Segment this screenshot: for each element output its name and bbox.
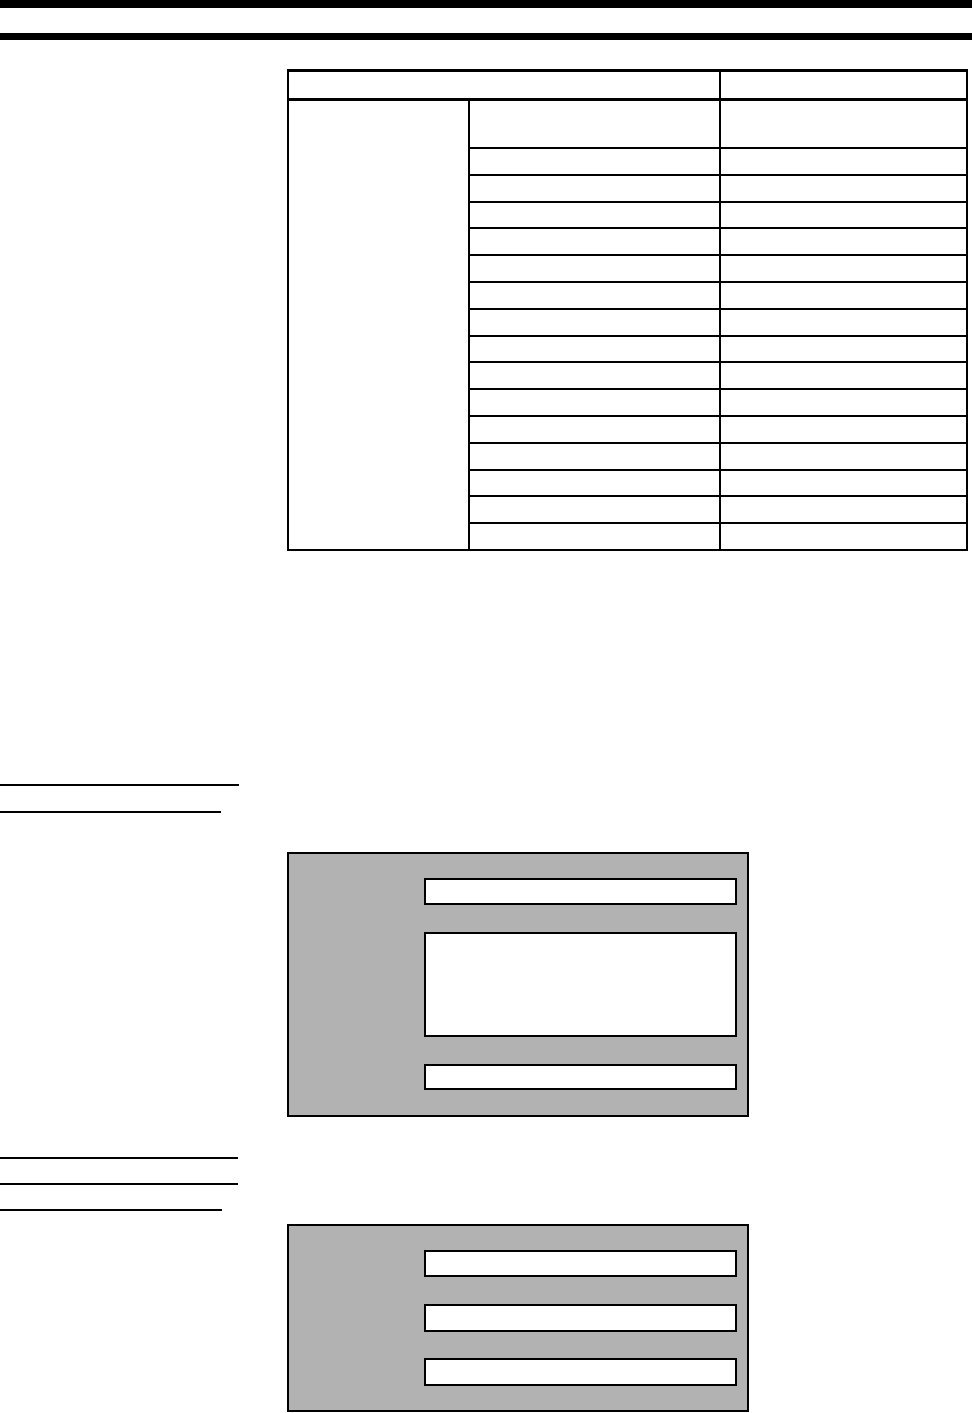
document-page [0,0,972,1413]
table-row [470,283,966,310]
row-label-cell [470,471,721,496]
spec-table-category-cell [289,101,470,549]
row-label-cell [470,149,721,174]
spec-table-header-row [289,72,966,101]
row-value-cell [721,471,966,496]
table-row [470,256,966,283]
spec-table-header-cell-left [289,72,721,98]
spec-table-header-cell-right [721,72,966,98]
row-label-cell [470,176,721,201]
table-row [470,390,966,417]
screen-field [424,932,737,1037]
screen-mockup-2 [287,1224,749,1412]
row-value-cell [721,363,966,388]
table-row [470,203,966,230]
row-label-cell [470,310,721,335]
row-value-cell [721,337,966,362]
row-label-cell [470,390,721,415]
row-value-cell [721,176,966,201]
row-label-cell [470,337,721,362]
screen-field [424,1064,737,1090]
table-row [470,444,966,471]
table-row [470,497,966,524]
header-rule [0,33,972,40]
row-label-cell [470,283,721,308]
row-value-cell [721,524,966,549]
margin-rule [0,811,221,813]
row-value-cell [721,149,966,174]
row-label-cell [470,497,721,522]
row-value-cell [721,497,966,522]
screen-field [424,1304,737,1332]
table-row [470,337,966,364]
table-row [470,524,966,549]
row-label-cell [470,444,721,469]
margin-rule [0,1183,238,1185]
table-row [470,229,966,256]
table-row [470,310,966,337]
table-row [470,176,966,203]
table-row [470,363,966,390]
page-top-bar [0,0,972,8]
margin-rule [0,1209,222,1211]
screen-field [424,1250,737,1277]
row-value-cell [721,283,966,308]
screen-mockup-1 [287,852,749,1117]
row-label-cell [470,229,721,254]
row-value-cell [721,390,966,415]
row-value-cell [721,229,966,254]
row-value-cell [721,101,966,147]
row-label-cell [470,417,721,442]
table-row [470,101,966,149]
spec-table-rows [470,101,966,549]
margin-rule [0,1157,238,1159]
row-value-cell [721,417,966,442]
margin-rule [0,784,239,786]
table-row [470,417,966,444]
screen-field [424,878,737,905]
spec-table-body [289,101,966,549]
row-label-cell [470,256,721,281]
row-label-cell [470,524,721,549]
table-row [470,471,966,498]
spec-table [287,69,968,551]
row-value-cell [721,444,966,469]
row-label-cell [470,203,721,228]
row-label-cell [470,363,721,388]
row-label-cell [470,101,721,147]
table-row [470,149,966,176]
row-value-cell [721,256,966,281]
row-value-cell [721,310,966,335]
screen-field [424,1358,737,1386]
row-value-cell [721,203,966,228]
